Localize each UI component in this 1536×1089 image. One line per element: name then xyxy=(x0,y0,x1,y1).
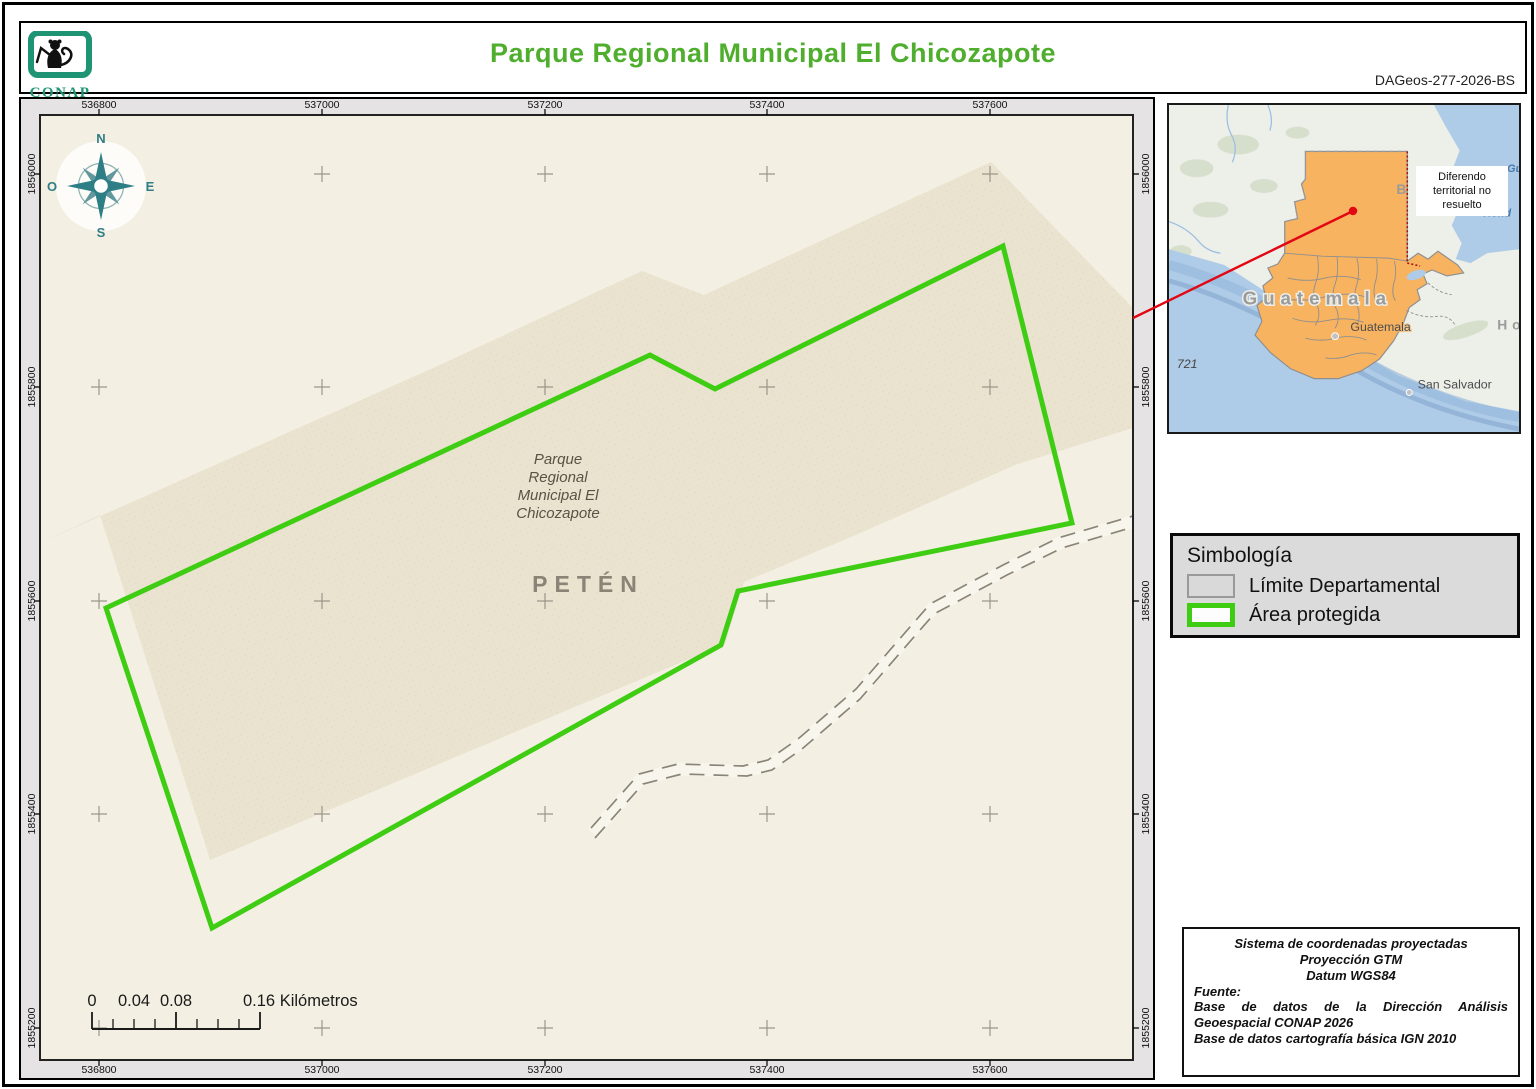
svg-text:Chicozapote: Chicozapote xyxy=(516,505,599,522)
svg-text:0: 0 xyxy=(87,992,96,1010)
y-label-left: 1855800 xyxy=(26,366,38,407)
document-code: DAGeos-277-2026-BS xyxy=(1375,72,1515,88)
x-label-top: 537600 xyxy=(972,99,1007,111)
svg-text:0.08: 0.08 xyxy=(160,992,192,1010)
legend: Simbología Límite Departamental Área pro… xyxy=(1170,533,1520,638)
datum-line: Datum WGS84 xyxy=(1194,968,1508,984)
coordinate-system-line: Sistema de coordenadas proyectadas xyxy=(1194,936,1508,952)
svg-text:Regional: Regional xyxy=(528,469,588,486)
metadata-box: Sistema de coordenadas proyectadas Proye… xyxy=(1182,927,1520,1077)
city-dot xyxy=(1332,333,1339,340)
compass-label-n: N xyxy=(96,131,105,146)
sea-label-fragment-1: Gu xyxy=(1507,163,1519,175)
legend-item-label: Límite Departamental xyxy=(1249,575,1440,598)
map-sheet-page: CONAP Parque Regional Municipal El Chico… xyxy=(0,0,1536,1089)
x-label-bottom: 536800 xyxy=(81,1064,116,1076)
inset-map: Guatemala Guatemala San Salvador Ho Gu H… xyxy=(1167,103,1521,434)
svg-text:0.04: 0.04 xyxy=(118,992,150,1010)
protected-area-swatch xyxy=(1187,603,1235,627)
territorial-note-box: Diferendo territorial no resuelto xyxy=(1416,166,1508,216)
region-label: PETÉN xyxy=(532,570,644,597)
svg-text:0.16 Kilómetros: 0.16 Kilómetros xyxy=(243,992,358,1010)
y-label-left: 1855200 xyxy=(26,1007,38,1048)
page-title: Parque Regional Municipal El Chicozapote xyxy=(21,38,1525,69)
inset-map-canvas: Guatemala Guatemala San Salvador Ho Gu H… xyxy=(1169,105,1519,432)
honduras-label-fragment: Ho xyxy=(1497,316,1519,332)
x-label-bottom: 537000 xyxy=(304,1064,339,1076)
compass-label-s: S xyxy=(97,225,106,240)
y-label-left: 1855600 xyxy=(26,580,38,621)
legend-title: Simbología xyxy=(1187,544,1503,568)
y-label-right: 1855400 xyxy=(1140,793,1152,834)
departmental-boundary-swatch xyxy=(1187,574,1235,598)
compass-label-e: E xyxy=(146,179,155,194)
x-label-top: 537200 xyxy=(527,99,562,111)
y-label-right: 1855800 xyxy=(1140,366,1152,407)
y-label-left: 1855400 xyxy=(26,793,38,834)
legend-item-area: Área protegida xyxy=(1187,603,1503,627)
x-label-top: 536800 xyxy=(81,99,116,111)
country-label: Guatemala xyxy=(1243,288,1392,309)
x-label-bottom: 537600 xyxy=(972,1064,1007,1076)
projection-line: Proyección GTM xyxy=(1194,952,1508,968)
y-label-right: 1855200 xyxy=(1140,1007,1152,1048)
source-line-2: Base de datos cartografía básica IGN 201… xyxy=(1194,1031,1508,1047)
header-bar: CONAP Parque Regional Municipal El Chico… xyxy=(19,21,1527,94)
x-label-bottom: 537200 xyxy=(527,1064,562,1076)
legend-item-limite: Límite Departamental xyxy=(1187,574,1503,598)
main-map: Parque Regional Municipal El Chicozapote… xyxy=(19,97,1155,1080)
source-heading: Fuente: xyxy=(1194,984,1508,1000)
x-label-bottom: 537400 xyxy=(749,1064,784,1076)
road-number-label: 721 xyxy=(1177,357,1198,371)
city-label: Guatemala xyxy=(1350,320,1411,334)
city-dot-2 xyxy=(1406,390,1412,396)
svg-text:Municipal El: Municipal El xyxy=(518,487,600,504)
y-label-right: 1855600 xyxy=(1140,580,1152,621)
y-label-left: 1856000 xyxy=(26,153,38,194)
legend-item-label: Área protegida xyxy=(1249,604,1380,627)
y-label-right: 1856000 xyxy=(1140,153,1152,194)
x-label-top: 537400 xyxy=(749,99,784,111)
compass-label-o: O xyxy=(47,179,57,194)
territorial-note-text: Diferendo territorial no resuelto xyxy=(1417,170,1507,213)
main-map-canvas: Parque Regional Municipal El Chicozapote… xyxy=(21,99,1153,1078)
x-label-top: 537000 xyxy=(304,99,339,111)
belize-label-fragment: B xyxy=(1396,181,1406,197)
source-line-1: Base de datos de la Dirección Análisis G… xyxy=(1194,999,1508,1031)
svg-text:Parque: Parque xyxy=(534,451,582,468)
city-label-2: San Salvador xyxy=(1418,378,1492,392)
